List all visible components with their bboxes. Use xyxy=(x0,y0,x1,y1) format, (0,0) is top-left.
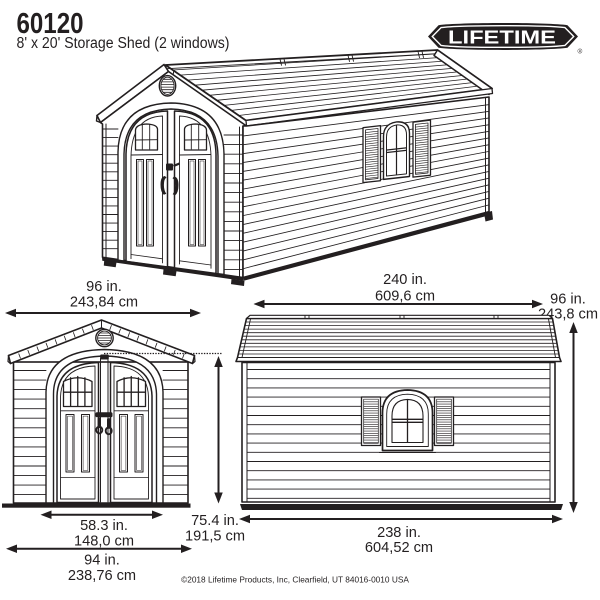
svg-text:243,84 cm: 243,84 cm xyxy=(70,294,138,310)
svg-text:75.4 in.: 75.4 in. xyxy=(191,513,239,529)
svg-text:148,0 cm: 148,0 cm xyxy=(74,533,134,549)
svg-text:238,76 cm: 238,76 cm xyxy=(68,568,136,584)
svg-text:96 in.: 96 in. xyxy=(86,279,122,295)
svg-text:96 in.: 96 in. xyxy=(550,291,586,307)
svg-text:240 in.: 240 in. xyxy=(383,272,427,288)
svg-text:8' x 20' Storage Shed (2 windo: 8' x 20' Storage Shed (2 windows) xyxy=(17,35,230,52)
svg-text:94 in.: 94 in. xyxy=(84,553,120,569)
svg-text:©2018 Lifetime Products, Inc,: ©2018 Lifetime Products, Inc, Clearfield… xyxy=(181,575,409,585)
svg-text:®: ® xyxy=(578,48,583,56)
svg-text:604,52 cm: 604,52 cm xyxy=(365,540,433,556)
svg-text:191,5 cm: 191,5 cm xyxy=(185,528,245,544)
svg-text:58.3 in.: 58.3 in. xyxy=(80,518,128,534)
svg-text:238 in.: 238 in. xyxy=(377,525,421,541)
svg-text:609,6 cm: 609,6 cm xyxy=(375,288,435,304)
svg-text:LIFETIME: LIFETIME xyxy=(448,27,556,47)
